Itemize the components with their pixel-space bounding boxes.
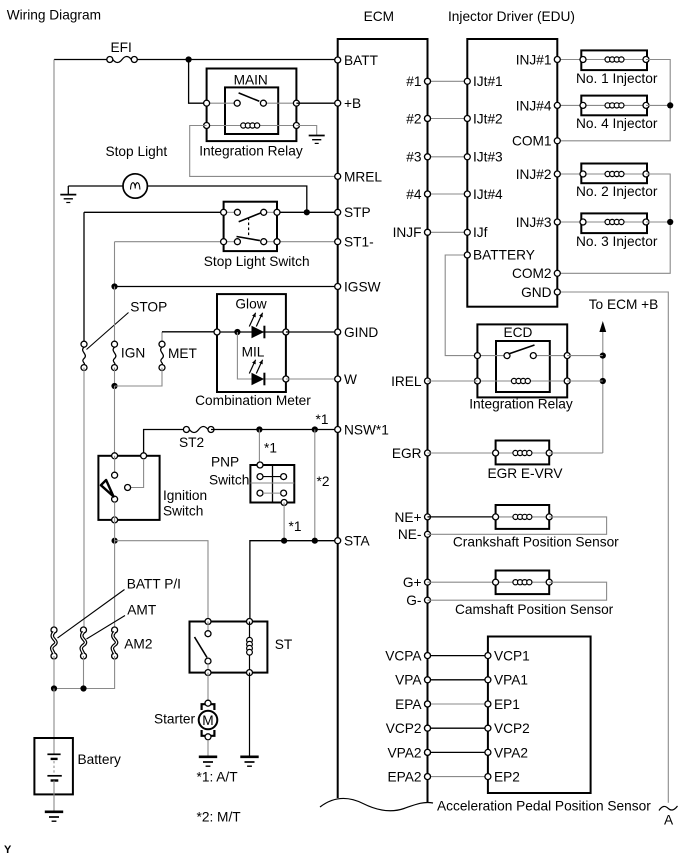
svg-text:#4: #4 [406,187,422,202]
svg-text:Wiring Diagram: Wiring Diagram [7,8,101,23]
svg-text:Camshaft Position Sensor: Camshaft Position Sensor [455,602,614,617]
svg-text:PNP: PNP [211,455,239,470]
svg-text:GIND: GIND [344,325,378,340]
svg-text:AM2: AM2 [124,637,152,652]
svg-text:Stop Light Switch: Stop Light Switch [204,254,310,269]
svg-text:Crankshaft Position Sensor: Crankshaft Position Sensor [453,534,619,549]
svg-text:M: M [202,713,213,728]
svg-text:INJ#3: INJ#3 [516,215,552,230]
svg-text:AMT: AMT [127,603,157,618]
svg-text:Integration Relay: Integration Relay [469,397,573,412]
svg-text:#1: #1 [406,74,421,89]
svg-text:VCP2: VCP2 [494,721,530,736]
svg-text:NSW*1: NSW*1 [344,422,389,437]
svg-text:STOP: STOP [130,300,167,315]
svg-text:Y: Y [4,844,12,855]
svg-text:VCPA: VCPA [385,649,422,664]
svg-text:G-: G- [406,593,421,608]
svg-text:MIL: MIL [242,345,265,360]
svg-text:ECM: ECM [364,9,394,24]
svg-text:ST1-: ST1- [344,235,374,250]
svg-text:IJt#1: IJt#1 [473,74,503,89]
svg-text:INJF: INJF [393,225,422,240]
svg-text:No. 1 Injector: No. 1 Injector [576,71,658,86]
svg-text:Starter: Starter [154,712,196,727]
svg-text:EPA2: EPA2 [388,770,422,785]
svg-text:IJt#3: IJt#3 [473,150,503,165]
svg-text:MET: MET [168,346,198,361]
svg-text:IJt#4: IJt#4 [473,187,503,202]
svg-text:No. 4 Injector: No. 4 Injector [576,116,658,131]
svg-text:Ignition: Ignition [163,488,207,503]
svg-text:NE-: NE- [398,527,422,542]
svg-text:*2: M/T: *2: M/T [197,810,242,825]
svg-text:BATT: BATT [344,53,379,68]
svg-text:IGSW: IGSW [344,279,381,294]
svg-text:W: W [344,372,357,387]
svg-text:MREL: MREL [344,169,382,184]
svg-text:Integration Relay: Integration Relay [199,143,303,158]
svg-text:IREL: IREL [391,374,422,389]
svg-text:VPA2: VPA2 [388,745,422,760]
svg-text:COM2: COM2 [512,266,552,281]
svg-text:BATT P/I: BATT P/I [127,577,181,592]
svg-text:VPA: VPA [395,673,422,688]
svg-text:Combination Meter: Combination Meter [195,393,311,408]
svg-text:VCP2: VCP2 [386,721,422,736]
svg-text:Switch: Switch [209,473,249,488]
svg-text:#2: #2 [406,111,421,126]
svg-text:ST2: ST2 [179,435,204,450]
svg-text:VPA2: VPA2 [494,745,528,760]
svg-text:Glow: Glow [235,297,266,312]
svg-text:MAIN: MAIN [234,72,268,87]
svg-text:IJf: IJf [473,225,488,240]
svg-text:*1: *1 [264,441,277,456]
svg-text:#3: #3 [406,150,422,165]
svg-text:COM1: COM1 [512,134,552,149]
svg-text:Switch: Switch [163,504,203,519]
svg-text:Stop Light: Stop Light [106,144,168,159]
svg-text:*2: *2 [317,474,330,489]
svg-text:A: A [664,813,674,828]
svg-text:INJ#1: INJ#1 [516,52,552,67]
svg-text:EPA: EPA [395,697,422,712]
svg-text:To ECM +B: To ECM +B [589,297,659,312]
svg-text:INJ#4: INJ#4 [516,98,552,113]
svg-text:IGN: IGN [121,346,145,361]
svg-text:ST: ST [275,637,293,652]
svg-text:VPA1: VPA1 [494,673,528,688]
svg-text:STA: STA [344,534,370,549]
svg-text:Battery: Battery [78,752,122,767]
svg-text:NE+: NE+ [394,510,421,525]
svg-text:GND: GND [521,285,552,300]
svg-text:EP2: EP2 [494,770,520,785]
svg-text:Acceleration Pedal Position Se: Acceleration Pedal Position Sensor [437,799,651,814]
svg-text:*1: *1 [289,519,302,534]
svg-text:BATTERY: BATTERY [473,247,535,262]
svg-text:INJ#2: INJ#2 [516,167,552,182]
svg-text:EGR: EGR [392,446,422,461]
svg-text:*1: A/T: *1: A/T [197,770,239,785]
svg-text:G+: G+ [403,575,422,590]
svg-text:ECD: ECD [504,325,533,340]
svg-text:No. 3 Injector: No. 3 Injector [576,234,658,249]
svg-text:STP: STP [344,205,371,220]
svg-text:No. 2 Injector: No. 2 Injector [576,184,658,199]
svg-text:Injector Driver (EDU): Injector Driver (EDU) [448,9,575,24]
svg-text:EGR E-VRV: EGR E-VRV [487,466,563,481]
svg-text:IJt#2: IJt#2 [473,111,503,126]
svg-text:EFI: EFI [111,40,132,55]
svg-text:+B: +B [344,96,361,111]
svg-text:*1: *1 [316,412,329,427]
svg-text:VCP1: VCP1 [494,649,530,664]
svg-text:EP1: EP1 [494,697,520,712]
